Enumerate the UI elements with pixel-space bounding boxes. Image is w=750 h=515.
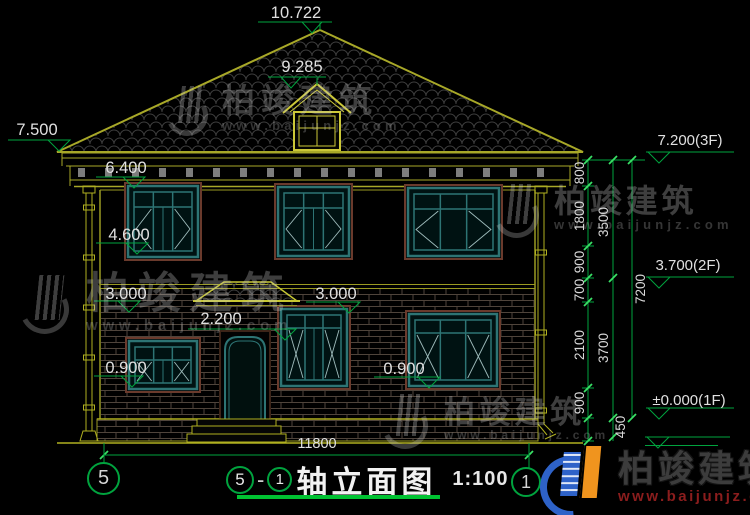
brand-logo-name: 柏竣建筑 bbox=[618, 449, 750, 489]
window bbox=[278, 306, 350, 389]
level-cornice: 6.400 bbox=[96, 160, 156, 177]
level-floor2: 3.700(2F) bbox=[646, 258, 730, 274]
cad-elevation-screenshot: 柏竣建筑 www.baijunjz.com 柏竣建筑 www.baijunjz.… bbox=[0, 0, 750, 515]
level-eave: 7.500 bbox=[8, 122, 66, 139]
level-1f-sill-mid: 0.900 bbox=[375, 361, 433, 378]
brand-logo-icon bbox=[540, 444, 610, 510]
window bbox=[405, 185, 502, 259]
brand-logo: 柏竣建筑 www.baijunjz.com bbox=[540, 444, 750, 510]
downspout-right bbox=[535, 186, 556, 439]
chain-subtotal-3700: 3700 bbox=[596, 318, 612, 378]
door-canopy bbox=[193, 282, 300, 306]
chain-seg-2100: 2100 bbox=[572, 315, 588, 375]
title-axis-from: 5 bbox=[226, 466, 254, 494]
window bbox=[125, 183, 201, 260]
title-axis-to: 1 bbox=[267, 467, 292, 492]
chain-total-7200: 7200 bbox=[633, 259, 649, 319]
level-canopy: 2.200 bbox=[192, 311, 250, 328]
level-floor3: 7.200(3F) bbox=[648, 133, 732, 149]
grid-bubble-5: 5 bbox=[87, 462, 120, 495]
dim-total-width: 11800 bbox=[287, 437, 347, 452]
grid-bubble-1: 1 bbox=[511, 467, 541, 497]
level-lintel-mid: 3.000 bbox=[307, 286, 365, 303]
chain-subtotal-3500: 3500 bbox=[596, 192, 612, 252]
dim-ridge-height: 10.722 bbox=[264, 5, 328, 22]
entrance-door bbox=[220, 331, 270, 424]
level-1f-sill-left: 0.900 bbox=[96, 360, 156, 377]
title-underline bbox=[237, 495, 440, 499]
chain-seg-900b: 900 bbox=[572, 373, 588, 433]
chain-seg-700: 700 bbox=[572, 260, 588, 320]
downspout-left bbox=[80, 186, 98, 441]
level-2f-sill: 4.600 bbox=[99, 227, 159, 244]
window bbox=[275, 184, 352, 259]
level-band: 3.000 bbox=[96, 286, 156, 303]
elevation-canvas bbox=[0, 0, 750, 515]
title-axis-separator: - bbox=[257, 467, 264, 493]
title-scale: 1:100 bbox=[452, 468, 508, 491]
entrance-steps bbox=[187, 419, 286, 442]
dim-dormer-height: 9.285 bbox=[272, 59, 332, 76]
level-floor1: ±0.000(1F) bbox=[644, 393, 734, 409]
brand-logo-url: www.baijunjz.com bbox=[618, 488, 750, 505]
